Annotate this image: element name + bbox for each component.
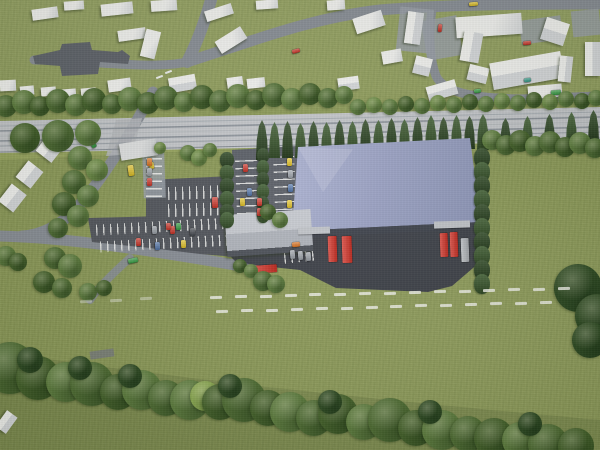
model-car	[240, 198, 245, 206]
white-model-building	[585, 42, 600, 76]
ground-dash-marking	[459, 289, 471, 292]
white-model-building	[0, 80, 16, 92]
ground-dash-marking	[291, 308, 303, 311]
model-car	[287, 200, 292, 208]
model-car	[290, 250, 296, 259]
tree	[96, 280, 112, 296]
hedge-bush	[220, 212, 234, 228]
model-car	[181, 240, 186, 248]
tree	[154, 142, 166, 154]
model-car	[438, 24, 443, 32]
loading-dock-canopy	[298, 226, 330, 234]
ground-dash-marking	[540, 301, 552, 304]
tree	[9, 253, 27, 271]
tree	[17, 347, 43, 373]
tree	[48, 218, 68, 238]
model-car	[147, 168, 152, 176]
tree	[350, 99, 366, 115]
model-car	[298, 251, 304, 260]
model-car	[523, 41, 531, 46]
tree	[79, 283, 97, 301]
ground-dash-marking	[533, 287, 545, 290]
tree	[203, 143, 217, 157]
model-car	[147, 178, 152, 186]
tree	[75, 120, 101, 146]
ground-dash-marking	[465, 303, 477, 306]
ground-dash-marking	[409, 291, 421, 294]
model-car	[469, 2, 478, 7]
tree	[446, 97, 462, 113]
tree	[318, 390, 342, 414]
tree	[494, 93, 510, 109]
white-model-building	[64, 0, 85, 10]
white-model-building	[247, 77, 266, 89]
tree	[462, 94, 478, 110]
model-car	[292, 242, 300, 248]
lorry-trailer	[328, 236, 338, 262]
tree	[414, 98, 430, 114]
tree	[585, 138, 600, 158]
lorry-trailer	[461, 238, 470, 262]
tree	[68, 356, 92, 380]
model-car	[212, 197, 218, 208]
model-car	[306, 252, 312, 261]
tree	[10, 123, 40, 153]
tree	[118, 364, 142, 388]
tree	[526, 92, 542, 108]
ground-dash-marking	[110, 298, 122, 301]
model-car	[166, 223, 171, 230]
white-model-building	[558, 55, 574, 82]
tree	[542, 94, 558, 110]
tree	[218, 374, 242, 398]
model-car	[147, 158, 152, 166]
model-car	[176, 223, 181, 230]
model-car	[288, 170, 293, 178]
lorry-trailer	[440, 233, 449, 257]
ground-dash-marking	[359, 292, 371, 295]
tree	[558, 91, 574, 107]
ground-dash-marking	[216, 310, 228, 313]
tree	[86, 159, 108, 181]
industrial-plot	[33, 42, 130, 76]
ground-dash-marking	[210, 296, 222, 299]
ground-dash-marking	[515, 302, 527, 305]
ground-dash-marking	[341, 306, 353, 309]
tree	[77, 185, 99, 207]
tree	[418, 400, 442, 424]
model-car	[288, 184, 293, 192]
tree	[510, 95, 526, 111]
lorry-trailer	[450, 232, 459, 257]
ground-dash-marking	[558, 287, 570, 290]
architectural-model-photo	[0, 0, 600, 450]
tree	[42, 120, 74, 152]
tree	[518, 412, 542, 436]
ground-dash-marking	[483, 289, 495, 292]
ground-dash-marking	[334, 293, 346, 296]
ground-dash-marking	[365, 306, 377, 309]
loading-dock-canopy	[434, 220, 470, 228]
ground-dash-marking	[266, 308, 278, 311]
model-car	[247, 188, 252, 196]
white-model-building	[151, 0, 178, 12]
field-slab	[90, 348, 115, 359]
ground-dash-marking	[390, 305, 402, 308]
ground-dash-marking	[285, 294, 297, 297]
model-car	[243, 164, 248, 172]
model-car	[152, 226, 157, 234]
model-car	[136, 238, 141, 246]
white-model-building	[327, 0, 346, 11]
tree	[58, 254, 82, 278]
tree	[478, 96, 494, 112]
tree	[572, 322, 600, 358]
pavement-pad	[571, 9, 600, 38]
model-car	[190, 228, 195, 236]
model-car	[155, 242, 160, 250]
tree	[67, 205, 89, 227]
tree	[272, 212, 288, 228]
model-car	[287, 158, 292, 166]
model-car	[257, 198, 262, 206]
lorry-trailer	[342, 236, 353, 263]
tree	[267, 275, 285, 293]
tree	[52, 278, 72, 298]
tree	[430, 95, 446, 111]
tree	[366, 97, 382, 113]
tree	[382, 99, 398, 115]
ground-dash-marking	[260, 295, 272, 298]
ground-dash-marking	[384, 291, 396, 294]
ground-dash-marking	[440, 304, 452, 307]
tree	[588, 90, 600, 106]
tree	[335, 86, 353, 104]
white-model-building	[256, 0, 279, 10]
tree	[398, 96, 414, 112]
